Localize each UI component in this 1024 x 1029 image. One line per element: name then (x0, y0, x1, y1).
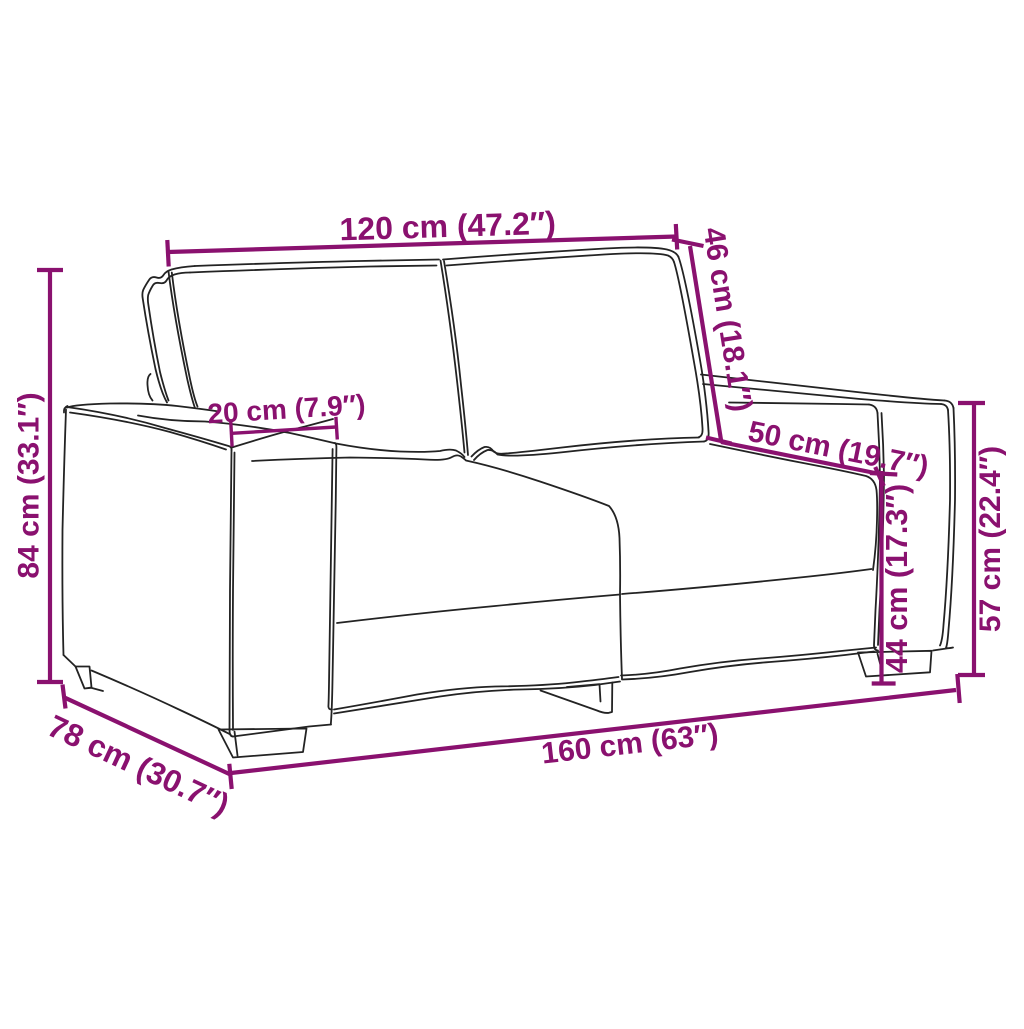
svg-text:46 cm (18.1″): 46 cm (18.1″) (697, 225, 759, 414)
svg-text:50 cm (19.7″): 50 cm (19.7″) (745, 415, 931, 484)
svg-text:84 cm (33.1″): 84 cm (33.1″) (13, 392, 46, 578)
svg-text:20 cm (7.9″): 20 cm (7.9″) (207, 389, 367, 430)
svg-text:44 cm (17.3″): 44 cm (17.3″) (880, 484, 914, 673)
svg-text:57 cm (22.4″): 57 cm (22.4″) (974, 446, 1007, 632)
svg-text:120 cm (47.2″): 120 cm (47.2″) (339, 205, 556, 248)
